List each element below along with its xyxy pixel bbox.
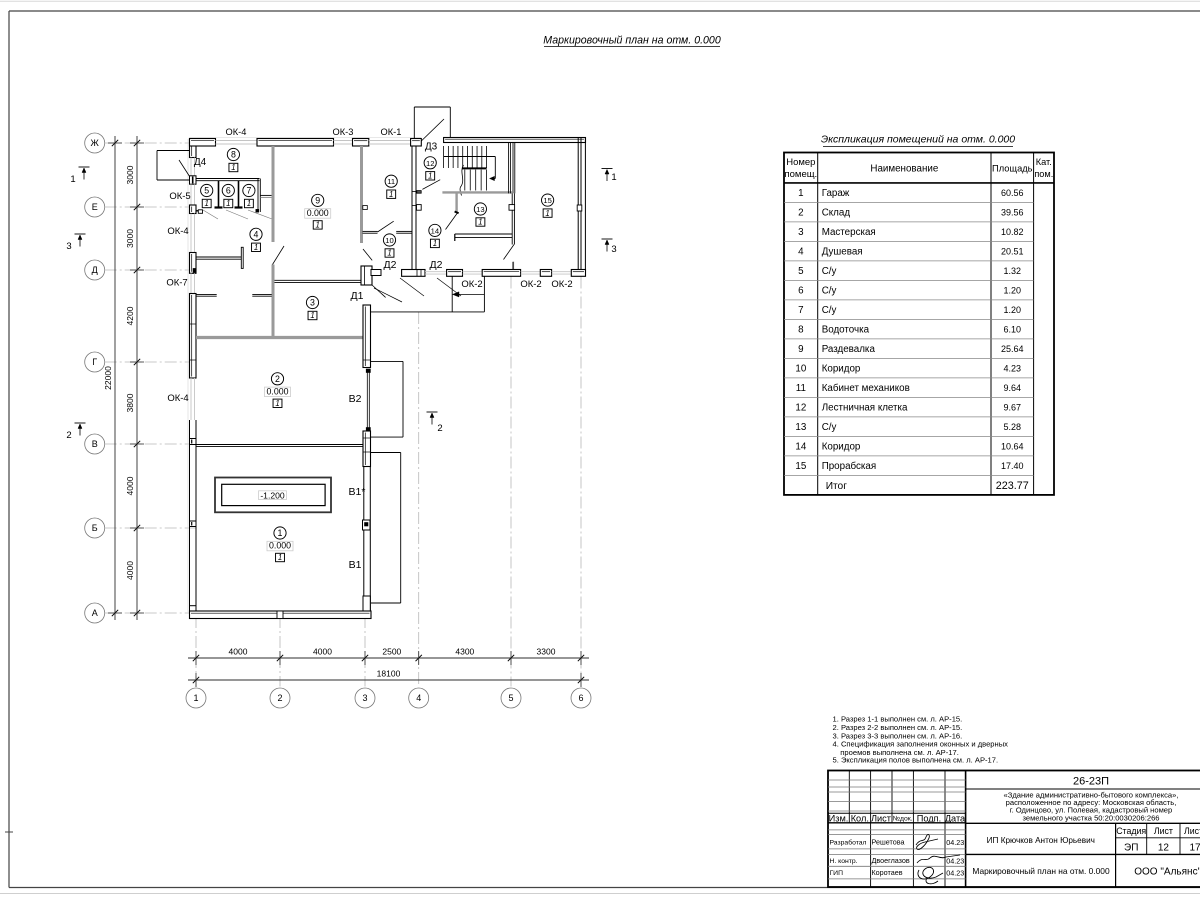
svg-text:1: 1 [70, 174, 75, 185]
svg-text:4000: 4000 [125, 561, 135, 580]
svg-text:Душевая: Душевая [822, 247, 863, 258]
svg-text:Д4: Д4 [194, 157, 207, 168]
svg-text:земельного участка 50:20:00302: земельного участка 50:20:0030206:266 [1022, 813, 1159, 822]
svg-text:В1: В1 [349, 559, 362, 571]
svg-text:15: 15 [543, 196, 551, 205]
svg-text:14: 14 [795, 442, 806, 453]
svg-text:4300: 4300 [455, 647, 474, 657]
svg-text:5. Экспликация полов выполнена: 5. Экспликация полов выполнена см. л. АР… [833, 756, 999, 765]
svg-text:ОК-2: ОК-2 [551, 279, 572, 290]
svg-text:3: 3 [362, 693, 367, 703]
svg-text:4: 4 [254, 229, 259, 239]
svg-text:Площадь: Площадь [992, 164, 1033, 174]
svg-text:Лист: Лист [871, 814, 892, 824]
svg-text:Стадия: Стадия [1116, 826, 1146, 836]
svg-text:Двоеглазов: Двоеглазов [872, 856, 910, 865]
svg-text:4: 4 [798, 247, 804, 258]
svg-text:ОК-5: ОК-5 [169, 191, 190, 202]
svg-text:Водоточка: Водоточка [822, 325, 870, 336]
svg-text:26-23П: 26-23П [1073, 776, 1109, 788]
svg-text:5.28: 5.28 [1004, 422, 1022, 432]
svg-text:5: 5 [508, 693, 513, 703]
svg-text:В: В [92, 439, 98, 449]
svg-text:А: А [92, 608, 98, 618]
svg-text:Решетова: Решетова [872, 838, 905, 847]
svg-text:Разработал: Разработал [830, 839, 867, 847]
svg-text:1: 1 [387, 249, 391, 258]
svg-text:В2: В2 [349, 393, 362, 405]
svg-text:2: 2 [798, 208, 803, 219]
svg-text:6: 6 [798, 286, 804, 297]
svg-text:60.56: 60.56 [1001, 188, 1024, 198]
svg-text:Маркировочный план на отм. 0.0: Маркировочный план на отм. 0.000 [543, 34, 721, 46]
svg-text:ОК-4: ОК-4 [167, 393, 188, 404]
svg-text:3: 3 [66, 241, 71, 252]
svg-text:1: 1 [428, 172, 432, 181]
svg-text:Кат.: Кат. [1036, 157, 1052, 167]
svg-text:10.64: 10.64 [1001, 441, 1024, 451]
svg-text:ОК-1: ОК-1 [381, 127, 402, 137]
svg-text:№док.: №док. [893, 816, 913, 823]
svg-text:17: 17 [1189, 843, 1200, 854]
svg-text:2: 2 [437, 423, 442, 434]
svg-text:ЭП: ЭП [1124, 843, 1138, 854]
svg-text:С/у: С/у [822, 305, 837, 316]
svg-text:8: 8 [231, 150, 236, 160]
svg-text:5: 5 [798, 266, 804, 277]
svg-text:4000: 4000 [125, 476, 135, 495]
svg-text:10: 10 [795, 364, 806, 375]
svg-text:1: 1 [798, 188, 803, 199]
svg-text:22000: 22000 [103, 366, 113, 390]
svg-text:1: 1 [478, 218, 482, 227]
svg-text:Мастерская: Мастерская [822, 227, 876, 238]
svg-text:Листов: Листов [1184, 826, 1200, 836]
svg-text:4200: 4200 [125, 306, 135, 325]
svg-text:25.64: 25.64 [1001, 344, 1024, 354]
svg-text:9: 9 [798, 344, 803, 355]
svg-text:Маркировочный план на отм. 0.0: Маркировочный план на отм. 0.000 [972, 866, 1110, 876]
svg-text:8: 8 [798, 325, 804, 336]
svg-text:Гараж: Гараж [822, 188, 850, 199]
svg-text:Д3: Д3 [425, 142, 438, 153]
svg-text:3: 3 [798, 227, 804, 238]
svg-text:20.51: 20.51 [1001, 246, 1024, 256]
svg-text:04.23: 04.23 [946, 838, 964, 847]
svg-text:1: 1 [231, 163, 235, 172]
svg-text:Экспликация помещений на отм.: Экспликация помещений на отм. 0.000 [821, 134, 1015, 146]
svg-text:Дата: Дата [945, 814, 966, 824]
svg-text:Лестничная клетка: Лестничная клетка [822, 403, 908, 414]
svg-text:1: 1 [433, 239, 437, 248]
svg-text:9.64: 9.64 [1004, 383, 1022, 393]
svg-text:1: 1 [254, 243, 258, 252]
svg-text:Изм.: Изм. [829, 814, 849, 824]
svg-text:13: 13 [795, 422, 806, 433]
svg-text:Д2: Д2 [384, 259, 397, 271]
svg-text:ОК-7: ОК-7 [166, 278, 187, 289]
svg-text:1: 1 [247, 199, 251, 208]
svg-text:4000: 4000 [313, 647, 332, 657]
svg-text:помещ.: помещ. [784, 169, 817, 180]
svg-text:ОК-2: ОК-2 [520, 279, 541, 290]
svg-text:1: 1 [278, 528, 283, 538]
svg-text:-1.200: -1.200 [260, 490, 285, 500]
svg-text:2500: 2500 [382, 647, 401, 657]
svg-text:ОК-4: ОК-4 [167, 226, 188, 237]
svg-text:Кол.: Кол. [851, 814, 869, 824]
svg-text:Д2: Д2 [430, 259, 443, 271]
svg-text:Кабинет механиков: Кабинет механиков [822, 383, 910, 394]
svg-text:4: 4 [416, 693, 421, 703]
svg-text:1: 1 [226, 199, 230, 208]
svg-text:3000: 3000 [125, 165, 135, 184]
svg-text:3: 3 [310, 298, 315, 308]
svg-text:10.82: 10.82 [1001, 227, 1024, 237]
svg-text:12: 12 [1158, 843, 1170, 854]
svg-text:2: 2 [275, 374, 280, 384]
svg-text:Коротаев: Коротаев [872, 868, 903, 877]
svg-text:Раздевалка: Раздевалка [822, 344, 876, 355]
svg-text:1.32: 1.32 [1004, 266, 1022, 276]
svg-text:4000: 4000 [229, 647, 248, 657]
svg-text:3800: 3800 [125, 393, 135, 412]
svg-text:Коридор: Коридор [822, 442, 861, 453]
svg-text:39.56: 39.56 [1001, 207, 1024, 217]
svg-text:Подп.: Подп. [917, 814, 941, 824]
svg-text:10: 10 [385, 236, 393, 245]
svg-text:3000: 3000 [125, 229, 135, 248]
svg-text:5: 5 [204, 186, 209, 196]
svg-text:Ж: Ж [91, 138, 100, 148]
svg-text:1.20: 1.20 [1004, 285, 1022, 295]
svg-text:04.23: 04.23 [946, 857, 964, 866]
svg-text:6: 6 [226, 186, 231, 196]
svg-text:0.000: 0.000 [269, 541, 291, 551]
svg-text:пом.: пом. [1034, 169, 1053, 179]
svg-text:12: 12 [426, 159, 434, 168]
svg-text:6.10: 6.10 [1004, 324, 1022, 334]
svg-text:С/у: С/у [822, 422, 837, 433]
svg-text:1: 1 [193, 693, 198, 703]
svg-text:1: 1 [545, 209, 549, 218]
svg-text:Коридор: Коридор [822, 364, 861, 375]
svg-text:С/у: С/у [822, 266, 837, 277]
svg-text:Склад: Склад [822, 208, 851, 219]
svg-text:11: 11 [796, 383, 806, 394]
svg-text:17.40: 17.40 [1001, 461, 1024, 471]
svg-text:9.67: 9.67 [1004, 402, 1022, 412]
svg-text:Итог: Итог [826, 481, 848, 492]
svg-text:Наименование: Наименование [870, 164, 938, 175]
svg-text:Прорабская: Прорабская [822, 461, 877, 472]
svg-text:Д1: Д1 [351, 290, 364, 302]
svg-text:4.23: 4.23 [1004, 363, 1022, 373]
svg-text:С/у: С/у [822, 286, 837, 297]
svg-text:12: 12 [795, 403, 806, 414]
svg-text:ГИП: ГИП [830, 870, 844, 877]
svg-text:15: 15 [795, 461, 806, 472]
svg-text:0.000: 0.000 [307, 208, 329, 218]
svg-text:11: 11 [387, 177, 395, 186]
svg-text:Номер: Номер [786, 157, 815, 168]
svg-text:1: 1 [205, 199, 209, 208]
svg-text:1: 1 [275, 399, 279, 408]
svg-text:Б: Б [92, 523, 98, 533]
svg-text:18100: 18100 [377, 669, 401, 679]
svg-text:ОК-4: ОК-4 [226, 127, 247, 137]
svg-text:Г: Г [92, 357, 97, 367]
svg-text:ОК-2: ОК-2 [461, 279, 482, 290]
svg-text:3300: 3300 [537, 647, 556, 657]
svg-text:1: 1 [611, 172, 616, 183]
svg-text:223.77: 223.77 [996, 480, 1029, 492]
svg-text:Н. контр.: Н. контр. [830, 858, 858, 865]
svg-text:1: 1 [278, 553, 282, 562]
svg-text:2: 2 [66, 430, 71, 441]
svg-text:1: 1 [389, 190, 393, 199]
svg-text:1.20: 1.20 [1004, 305, 1022, 315]
svg-text:Д: Д [92, 265, 98, 275]
svg-text:14: 14 [431, 226, 439, 235]
svg-text:3: 3 [611, 244, 616, 255]
svg-text:7: 7 [246, 186, 251, 196]
svg-text:1: 1 [316, 221, 320, 230]
svg-text:2: 2 [277, 693, 282, 703]
svg-text:ИП Крючков Антон Юрьевич: ИП Крючков Антон Юрьевич [987, 836, 1095, 845]
svg-text:1: 1 [310, 311, 314, 320]
svg-text:1. Разрез 1-1 выполнен см. л.: 1. Разрез 1-1 выполнен см. л. АР-15. [833, 714, 963, 723]
svg-text:04.23: 04.23 [946, 869, 964, 878]
svg-text:7: 7 [798, 305, 803, 316]
svg-text:ООО "Альянс": ООО "Альянс" [1134, 867, 1200, 878]
svg-text:Лист: Лист [1154, 826, 1173, 836]
svg-text:13: 13 [476, 205, 484, 214]
svg-text:В1*: В1* [349, 486, 366, 498]
svg-text:9: 9 [315, 195, 320, 205]
svg-text:0.000: 0.000 [266, 386, 288, 396]
svg-text:Е: Е [92, 202, 98, 212]
svg-text:6: 6 [578, 693, 583, 703]
svg-text:ОК-3: ОК-3 [333, 127, 354, 137]
